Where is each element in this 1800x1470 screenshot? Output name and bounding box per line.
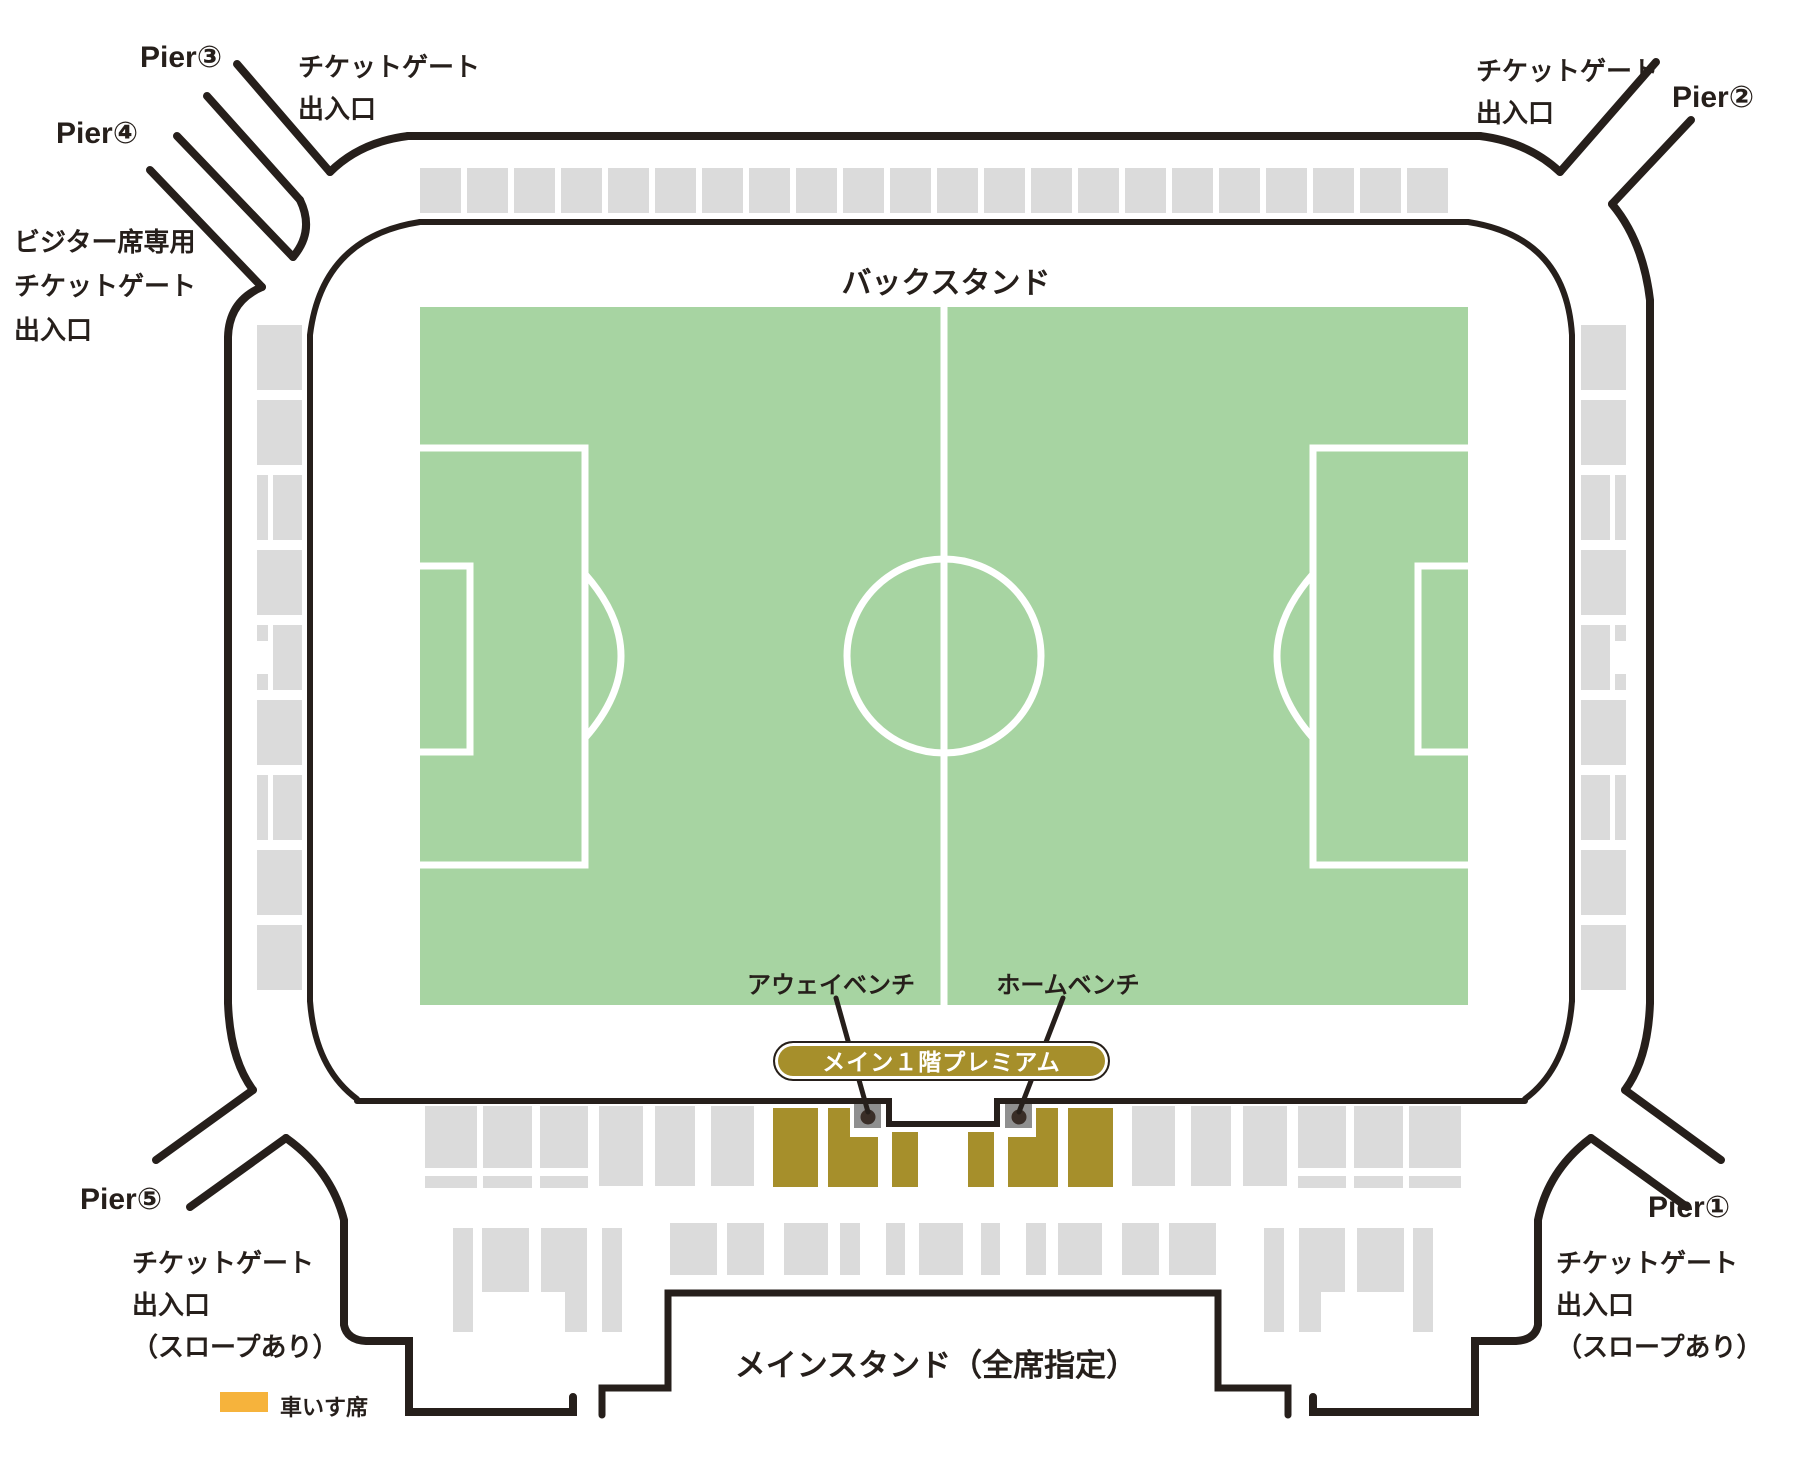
seat-block	[561, 168, 602, 213]
seat-block	[483, 1106, 532, 1168]
seat-block	[257, 400, 302, 465]
pier5-label: Pier⑤	[80, 1182, 162, 1217]
back-stand-label: バックスタンド	[746, 258, 1146, 302]
seat-block	[919, 1223, 963, 1275]
seat-block	[1219, 168, 1260, 213]
home-bench-label: ホームベンチ	[943, 965, 1193, 1000]
seat-block	[482, 1228, 529, 1292]
seat-block	[1581, 850, 1626, 915]
seat-block	[425, 1176, 477, 1188]
seat-block	[702, 168, 743, 213]
seat-block	[655, 1106, 695, 1186]
seat-block	[602, 1228, 622, 1332]
pier1-label: Pier①	[1648, 1190, 1730, 1225]
seat-block	[425, 1106, 477, 1168]
seat-block	[843, 168, 884, 213]
outer-wall	[330, 136, 408, 172]
seat-block	[1357, 1228, 1404, 1292]
outer-wall	[1625, 1003, 1650, 1090]
premium-seat-block	[1068, 1108, 1113, 1187]
seat-block	[257, 674, 268, 690]
seat-block	[886, 1223, 905, 1275]
seat-block	[1581, 550, 1626, 615]
pier4-label: Pier④	[56, 116, 138, 151]
seat-block	[1581, 475, 1610, 540]
outer-wall	[1625, 1090, 1721, 1160]
seat-block	[514, 168, 555, 213]
seat-block	[1354, 1106, 1403, 1168]
outer-wall	[156, 1090, 253, 1160]
wheelchair-legend-swatch	[220, 1392, 268, 1412]
pier3-label: Pier③	[140, 40, 222, 75]
seat-block	[1243, 1106, 1287, 1186]
seat-block	[1409, 1176, 1461, 1188]
stadium-seating-map: Pier③ チケットゲート 出入口 Pier④ ビジター席専用 チケットゲート …	[0, 0, 1800, 1470]
premium-seat-block	[850, 1137, 878, 1187]
seat-block	[273, 775, 302, 840]
seat-block	[608, 168, 649, 213]
seat-block	[1026, 1223, 1046, 1275]
seat-block	[670, 1223, 717, 1275]
seat-block	[540, 1106, 588, 1168]
seat-block	[1132, 1106, 1175, 1186]
wheelchair-legend-label: 車いす席	[280, 1390, 368, 1422]
seat-block	[1354, 1176, 1403, 1188]
seat-block	[1413, 1228, 1433, 1332]
seat-block	[540, 1176, 588, 1188]
seat-block	[453, 1228, 473, 1332]
seat-block	[1125, 168, 1166, 213]
seat-block	[796, 168, 837, 213]
seat-block	[1407, 168, 1448, 213]
seat-block	[1298, 1176, 1346, 1188]
seat-block	[1615, 775, 1626, 840]
visitor-gate-label: ビジター席専用 チケットゲート 出入口	[14, 220, 196, 352]
seat-block	[257, 325, 302, 390]
seat-block	[749, 168, 790, 213]
seat-block	[1299, 1228, 1345, 1292]
seat-block	[1169, 1223, 1216, 1275]
seat-block	[840, 1223, 860, 1275]
seat-block	[257, 475, 268, 540]
seat-block	[257, 700, 302, 765]
seat-block	[1360, 168, 1401, 213]
seat-block	[257, 550, 302, 615]
seat-block	[784, 1223, 828, 1275]
premium-section-pill: メイン１階プレミアム	[773, 1041, 1110, 1081]
inner-wall	[310, 222, 420, 1001]
seat-block	[1581, 925, 1626, 990]
seat-block	[257, 625, 268, 641]
seat-block	[1266, 168, 1307, 213]
premium-seat-block	[968, 1132, 994, 1187]
seat-block	[1615, 625, 1626, 641]
inner-wall	[310, 1001, 357, 1099]
seat-block	[1299, 1292, 1321, 1332]
premium-seat-block	[773, 1108, 818, 1187]
premium-seat-block	[1036, 1108, 1058, 1187]
outer-wall	[1480, 136, 1560, 172]
seat-block	[984, 168, 1025, 213]
seat-block	[1264, 1228, 1284, 1332]
seat-block	[273, 625, 302, 690]
seat-block	[257, 925, 302, 990]
premium-seat-block	[1008, 1137, 1036, 1187]
seat-block	[1191, 1106, 1231, 1186]
seat-block	[890, 168, 931, 213]
seat-block	[1298, 1106, 1346, 1168]
seat-block	[1581, 625, 1610, 690]
inner-wall	[1468, 222, 1572, 1001]
outer-wall	[293, 200, 306, 257]
premium-seat-block	[828, 1108, 850, 1187]
seat-block	[599, 1106, 643, 1186]
seat-block	[1581, 325, 1626, 390]
seat-block	[420, 168, 461, 213]
premium-section-label: メイン１階プレミアム	[822, 1049, 1060, 1075]
seat-block	[1615, 475, 1626, 540]
seat-block	[1078, 168, 1119, 213]
pier2-label: Pier②	[1672, 80, 1754, 115]
seat-block	[1581, 700, 1626, 765]
inner-wall	[1525, 1001, 1572, 1099]
gate-bottom-right-label: チケットゲート 出入口 （スロープあり）	[1556, 1242, 1762, 1368]
gate-top-right-label: チケットゲート 出入口	[1476, 50, 1658, 134]
seat-block	[257, 850, 302, 915]
seat-block	[1058, 1223, 1102, 1275]
seat-block	[1581, 775, 1610, 840]
outer-wall	[190, 1138, 286, 1207]
premium-seat-block	[892, 1132, 918, 1187]
seat-block	[727, 1223, 764, 1275]
seat-block	[1615, 674, 1626, 690]
outer-wall	[228, 287, 262, 1003]
inner-wall	[357, 1101, 1525, 1124]
seat-block	[467, 168, 508, 213]
seat-block	[273, 475, 302, 540]
seat-block	[1409, 1106, 1461, 1168]
seat-block	[655, 168, 696, 213]
seat-block	[1031, 168, 1072, 213]
away-bench-label: アウェイベンチ	[706, 965, 956, 1000]
seat-block	[981, 1223, 1000, 1275]
seat-block	[937, 168, 978, 213]
seat-block	[541, 1228, 587, 1292]
seat-block	[257, 775, 268, 840]
gate-top-left-label: チケットゲート 出入口	[298, 46, 480, 130]
outer-wall	[228, 1003, 253, 1090]
seat-block	[483, 1176, 532, 1188]
seat-block	[1313, 168, 1354, 213]
seat-block	[1122, 1223, 1159, 1275]
seat-block	[1172, 168, 1213, 213]
seat-block	[711, 1106, 754, 1186]
seat-block	[1581, 400, 1626, 465]
seat-block	[565, 1292, 587, 1332]
main-stand-label: メインスタンド（全席指定）	[716, 1340, 1156, 1385]
gate-bottom-left-label: チケットゲート 出入口 （スロープあり）	[132, 1242, 338, 1368]
